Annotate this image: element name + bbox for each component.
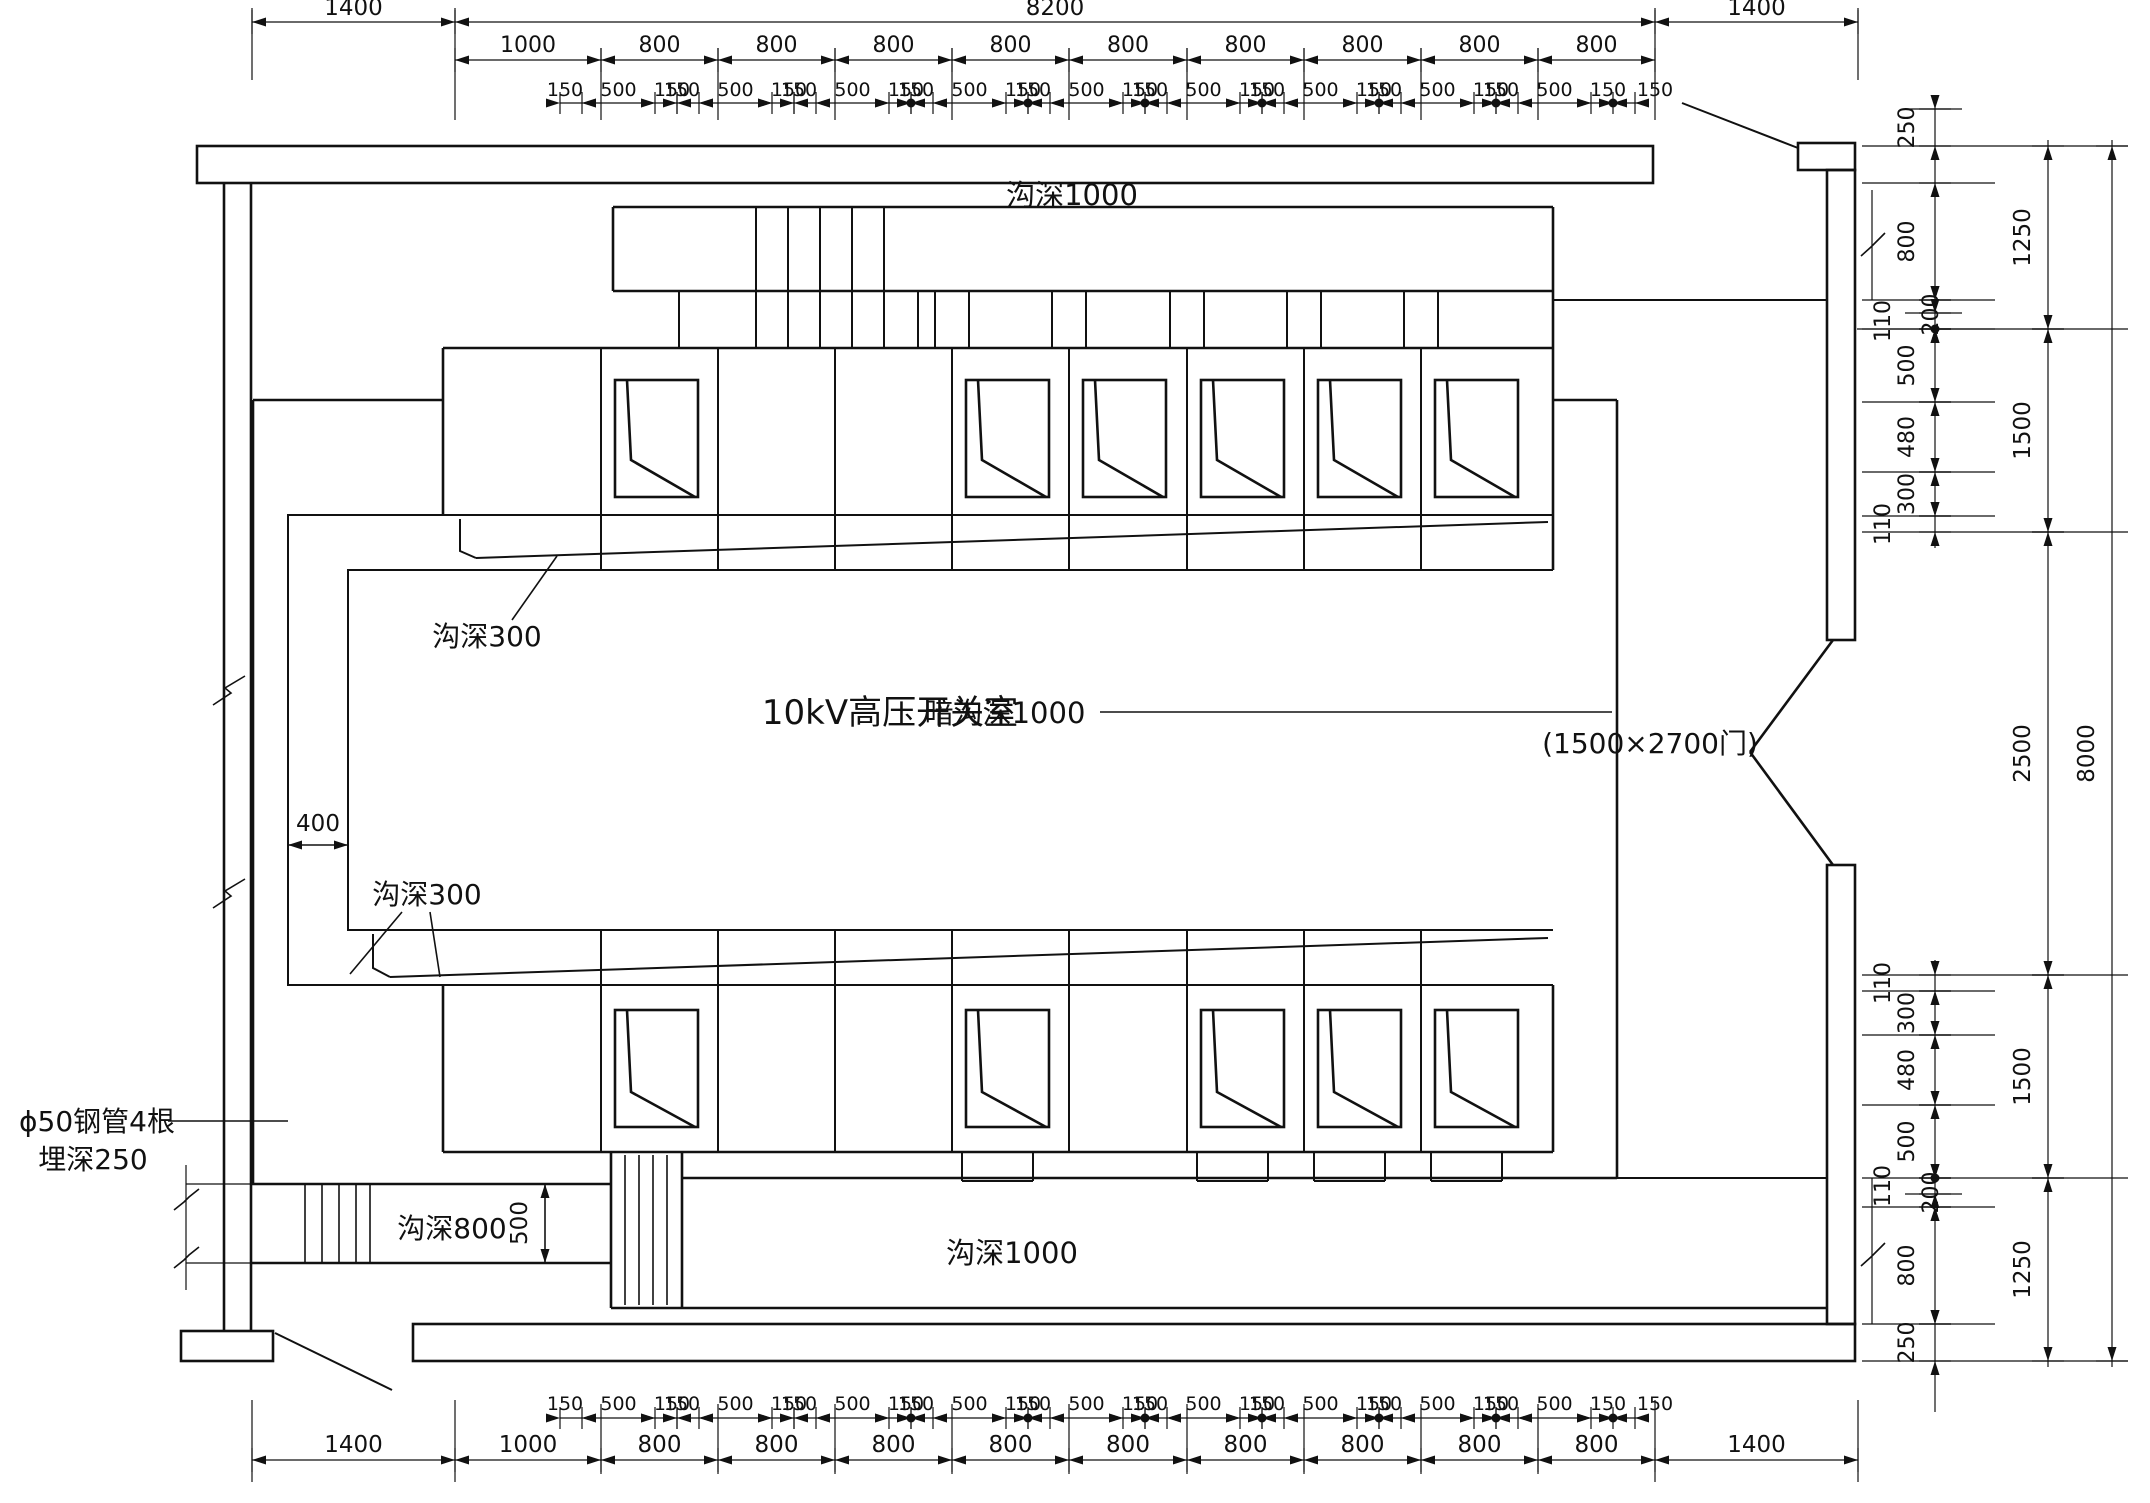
- dimension-label: 500: [1302, 79, 1338, 101]
- dimension-label: 500: [1895, 345, 1920, 387]
- dimension-arrow: [1167, 1414, 1181, 1423]
- dimension-arrow: [1284, 1414, 1298, 1423]
- dimension-dot: [1492, 99, 1501, 108]
- dimension-arrow: [441, 1456, 455, 1465]
- dimension-label: 1400: [324, 0, 383, 21]
- door-leaf: [1750, 640, 1833, 752]
- dimension-arrow: [1407, 1456, 1421, 1465]
- dimension-arrow: [1931, 388, 1940, 402]
- dimension-arrow: [587, 1456, 601, 1465]
- dimension-arrow: [252, 18, 266, 27]
- dimension-arrow: [718, 1456, 732, 1465]
- dimension-label: 150: [1249, 79, 1285, 101]
- cell-hook: [1213, 1010, 1281, 1127]
- dimension-label: 8000: [2074, 724, 2100, 783]
- dimension-arrow: [1931, 991, 1940, 1005]
- dimension-label: 110: [1871, 300, 1896, 342]
- dimension-arrow: [1187, 56, 1201, 65]
- dimension-label: 800: [1459, 33, 1501, 58]
- dimension-arrow: [288, 841, 302, 850]
- dimension-arrow: [1187, 1456, 1201, 1465]
- dimension-label: 500: [1302, 1393, 1338, 1415]
- duct-width-value: 400: [296, 811, 340, 837]
- cell-hook: [1330, 1010, 1398, 1127]
- dimension-label: 1500: [2010, 1047, 2036, 1106]
- dimension-arrow: [938, 56, 952, 65]
- dimension-dot: [1024, 99, 1033, 108]
- dimension-arrow: [1641, 56, 1655, 65]
- door-label: (1500×2700门): [1542, 727, 1758, 760]
- dimension-label: 800: [1895, 221, 1920, 263]
- dimension-arrow: [1641, 18, 1655, 27]
- dimension-arrow: [816, 99, 830, 108]
- dimension-label: 800: [1224, 1432, 1268, 1458]
- dimension-arrow: [601, 56, 615, 65]
- cell-hook: [1330, 380, 1398, 497]
- dimension-label: 150: [547, 79, 583, 101]
- dimension-label: 800: [1895, 1245, 1920, 1287]
- dimension-label: 250: [1895, 107, 1920, 149]
- dimension-arrow: [2108, 146, 2117, 160]
- dimension-label: 150: [1483, 1393, 1519, 1415]
- dimension-arrow: [821, 1456, 835, 1465]
- dimension-label: 800: [989, 1432, 1033, 1458]
- dimension-arrow: [1069, 1456, 1083, 1465]
- annotations: 10kV高压开关室 沟深1000 沟深1000 暗沟深1000 沟深800 沟深…: [19, 178, 1758, 1270]
- dimension-arrow: [1844, 18, 1858, 27]
- dimension-dot: [1258, 1414, 1267, 1423]
- dimension-arrow: [1524, 56, 1538, 65]
- dimension-label: 800: [639, 33, 681, 58]
- dimension-arrow: [699, 99, 713, 108]
- dimension-arrow: [1931, 1361, 1940, 1375]
- dimension-label: 800: [1575, 1432, 1619, 1458]
- dimension-arrow: [2044, 975, 2053, 989]
- dimension-arrow: [252, 1456, 266, 1465]
- drawing-page: 10kV高压开关室 沟深1000 沟深1000 暗沟深1000 沟深800 沟深…: [0, 0, 2150, 1503]
- dimension-arrow: [1844, 1456, 1858, 1465]
- pipes-label-line1: ϕ50钢管4根: [19, 1105, 175, 1138]
- duct-hook-bottom: [373, 934, 390, 977]
- break-mark: [213, 676, 245, 705]
- duct-slope-top: [476, 522, 1548, 558]
- dimension-arrow: [1173, 56, 1187, 65]
- dimension-arrow: [1055, 56, 1069, 65]
- dimension-label: 800: [756, 33, 798, 58]
- door-leader: [1682, 103, 1798, 148]
- right-wall-upper: [1827, 170, 1855, 640]
- dimension-label: 500: [951, 1393, 987, 1415]
- dimension-label: 500: [1068, 1393, 1104, 1415]
- dimension-arrow: [1931, 1021, 1940, 1035]
- cell-hook: [1213, 380, 1281, 497]
- dimension-arrow: [933, 1414, 947, 1423]
- dimension-arrow: [1290, 56, 1304, 65]
- cell-hook: [978, 380, 1046, 497]
- dimension-arrow: [541, 1249, 550, 1263]
- dimension-label: 800: [873, 33, 915, 58]
- dimension-dot: [1609, 1414, 1618, 1423]
- break-mark: [213, 879, 245, 908]
- dimension-label: 500: [600, 1393, 636, 1415]
- dimension-label: 800: [1342, 33, 1384, 58]
- shallow-bottom-leader: [350, 912, 402, 974]
- dimension-arrow: [1931, 458, 1940, 472]
- dimension-label: 150: [547, 1393, 583, 1415]
- dimension-arrow: [835, 1456, 849, 1465]
- cell-hook: [627, 1010, 695, 1127]
- dimension-arrow: [938, 1456, 952, 1465]
- dimension-arrow: [1050, 99, 1064, 108]
- dimension-arrow: [704, 56, 718, 65]
- dimension-arrow: [1401, 1414, 1415, 1423]
- dimension-label: 150: [1132, 79, 1168, 101]
- dimension-arrow: [455, 1456, 469, 1465]
- bottom-wall: [413, 1324, 1855, 1361]
- dimension-label: 480: [1895, 1049, 1920, 1091]
- dimension-arrow: [835, 56, 849, 65]
- break-mark: [1861, 1243, 1885, 1266]
- dimension-label: 110: [1871, 1165, 1896, 1207]
- dimension-dot: [1492, 1414, 1501, 1423]
- dimension-arrow: [952, 1456, 966, 1465]
- dimension-label: 500: [1536, 1393, 1572, 1415]
- cell-hook: [978, 1010, 1046, 1127]
- dimension-arrow: [1931, 183, 1940, 197]
- dimension-arrow: [1538, 56, 1552, 65]
- dimension-label: 1400: [1727, 0, 1786, 21]
- dimension-arrow: [2044, 1347, 2053, 1361]
- dimension-arrow: [1290, 1456, 1304, 1465]
- dimension-dot: [907, 99, 916, 108]
- dimension-arrow: [2044, 329, 2053, 343]
- dimension-label: 150: [1249, 1393, 1285, 1415]
- dimension-label: 1250: [2010, 1240, 2036, 1299]
- dimension-label: 2500: [2010, 724, 2036, 783]
- dimension-label: 250: [1895, 1322, 1920, 1364]
- dimension-arrow: [1931, 1310, 1940, 1324]
- dimension-label: 500: [717, 79, 753, 101]
- dimension-label: 800: [1106, 1432, 1150, 1458]
- dimension-label: 150: [1637, 79, 1673, 101]
- dimension-arrow: [2044, 315, 2053, 329]
- dimension-label: 500: [600, 79, 636, 101]
- left-trench-label: 沟深800: [397, 1212, 506, 1245]
- dimension-arrow: [601, 1456, 615, 1465]
- dimension-dot: [1375, 1414, 1384, 1423]
- dimension-label: 500: [1185, 79, 1221, 101]
- dimension-arrow: [1931, 1091, 1940, 1105]
- right-pier-cap: [1798, 143, 1855, 170]
- duct-hook-top: [460, 519, 476, 558]
- dimension-arrow: [587, 56, 601, 65]
- shallow-bottom-leader: [430, 912, 440, 977]
- left-wall-footing: [181, 1331, 273, 1361]
- dimension-label: 8200: [1026, 0, 1085, 21]
- dimension-arrow: [2108, 1347, 2117, 1361]
- dimension-arrow: [541, 1184, 550, 1198]
- dimension-arrow: [1655, 18, 1669, 27]
- dimension-label: 150: [1590, 1393, 1626, 1415]
- dimension-arrow: [1931, 95, 1940, 109]
- dimension-label: 800: [1458, 1432, 1502, 1458]
- dimension-label: 800: [1341, 1432, 1385, 1458]
- engineering-drawing: 10kV高压开关室 沟深1000 沟深1000 暗沟深1000 沟深800 沟深…: [0, 0, 2150, 1503]
- dimension-dot: [1609, 99, 1618, 108]
- dimension-arrow: [1931, 472, 1940, 486]
- dimension-label: 500: [1185, 1393, 1221, 1415]
- dimension-arrow: [1167, 99, 1181, 108]
- dimension-label: 500: [834, 1393, 870, 1415]
- dimension-chains: 1400820014001000800800800800800800800800…: [252, 0, 2128, 1482]
- cell-hook: [627, 380, 695, 497]
- top-wall: [197, 146, 1653, 183]
- dimension-arrow: [952, 56, 966, 65]
- dimension-label: 1500: [2010, 401, 2036, 460]
- dimension-label: 150: [1015, 79, 1051, 101]
- dimension-label: 300: [1895, 473, 1920, 515]
- dimension-arrow: [1538, 1456, 1552, 1465]
- break-mark: [1861, 233, 1885, 256]
- dimension-arrow: [334, 841, 348, 850]
- dimension-label: 500: [1068, 79, 1104, 101]
- dimension-arrow: [455, 56, 469, 65]
- dimension-label: 150: [898, 1393, 934, 1415]
- dimension-label: 500: [1419, 79, 1455, 101]
- dimension-arrow: [2044, 1164, 2053, 1178]
- dimension-arrow: [718, 56, 732, 65]
- dimension-label: 1400: [1727, 1432, 1786, 1458]
- dimension-dot: [1024, 1414, 1033, 1423]
- dimension-arrow: [1931, 532, 1940, 546]
- shallow-top-leader: [512, 556, 557, 620]
- dimension-label: 150: [1483, 79, 1519, 101]
- dimension-label: 800: [1225, 33, 1267, 58]
- duct-slope-bottom: [390, 938, 1548, 977]
- dimension-arrow: [699, 1414, 713, 1423]
- dimension-arrow: [1050, 1414, 1064, 1423]
- dimension-label: 800: [1107, 33, 1149, 58]
- dimension-arrow: [1069, 56, 1083, 65]
- dimension-label: 150: [664, 1393, 700, 1415]
- shallow-trench-top-label: 沟深300: [432, 620, 541, 653]
- dimension-label: 1000: [500, 33, 556, 58]
- dimension-label: 800: [755, 1432, 799, 1458]
- dimension-label: 480: [1895, 416, 1920, 458]
- dimension-arrow: [1407, 56, 1421, 65]
- dimension-arrow: [1421, 56, 1435, 65]
- dimension-arrow: [1173, 1456, 1187, 1465]
- cell-hook: [1095, 380, 1163, 497]
- dimension-label: 500: [1536, 79, 1572, 101]
- dimension-label: 150: [781, 79, 817, 101]
- dimension-arrow: [1284, 99, 1298, 108]
- dimension-label: 150: [781, 1393, 817, 1415]
- dimension-dot: [1258, 99, 1267, 108]
- dimension-arrow: [1518, 99, 1532, 108]
- dimension-arrow: [1655, 1456, 1669, 1465]
- dimension-label: 150: [1366, 79, 1402, 101]
- dimension-label: 150: [664, 79, 700, 101]
- dimension-label: 110: [1871, 503, 1896, 545]
- right-wall-lower: [1827, 865, 1855, 1324]
- dimension-label: 110: [1871, 962, 1896, 1004]
- dimension-label: 500: [1419, 1393, 1455, 1415]
- dimension-label: 800: [638, 1432, 682, 1458]
- dimension-label: 500: [717, 1393, 753, 1415]
- dimension-label: 150: [1590, 79, 1626, 101]
- dimension-arrow: [1055, 1456, 1069, 1465]
- dimension-label: 150: [1015, 1393, 1051, 1415]
- dimension-arrow: [2044, 532, 2053, 546]
- shallow-trench-bottom-label: 沟深300: [372, 878, 481, 911]
- dimension-label: 800: [1576, 33, 1618, 58]
- dimension-arrow: [2044, 961, 2053, 975]
- left-trench-depth-value: 500: [507, 1201, 533, 1245]
- dimension-arrow: [2044, 518, 2053, 532]
- dimension-label: 1400: [324, 1432, 383, 1458]
- dimension-arrow: [1931, 502, 1940, 516]
- dimension-dot: [907, 1414, 916, 1423]
- dimension-label: 500: [1895, 1121, 1920, 1163]
- door-leaf: [1750, 752, 1833, 865]
- pipes-label-line2: 埋深250: [38, 1143, 147, 1176]
- dimension-arrow: [2044, 1178, 2053, 1192]
- dimension-arrow: [2044, 146, 2053, 160]
- dimension-arrow: [1931, 961, 1940, 975]
- hidden-trench-label: 暗沟深1000: [925, 696, 1086, 730]
- dimension-arrow: [1931, 146, 1940, 160]
- dimension-arrow: [1304, 1456, 1318, 1465]
- dimension-arrow: [816, 1414, 830, 1423]
- dimension-arrow: [933, 99, 947, 108]
- dimension-label: 500: [951, 79, 987, 101]
- dimension-arrow: [1641, 1456, 1655, 1465]
- dimension-dot: [1141, 1414, 1150, 1423]
- ground-leader: [275, 1333, 392, 1390]
- dimension-label: 300: [1895, 992, 1920, 1034]
- dimension-label: 800: [872, 1432, 916, 1458]
- dimension-label: 800: [990, 33, 1032, 58]
- dimension-arrow: [1518, 1414, 1532, 1423]
- dimension-arrow: [1931, 1035, 1940, 1049]
- dimension-label: 1250: [2010, 208, 2036, 267]
- dimension-arrow: [1524, 1456, 1538, 1465]
- dimension-arrow: [704, 1456, 718, 1465]
- dimension-dot: [1141, 99, 1150, 108]
- dimension-arrow: [441, 18, 455, 27]
- dimension-arrow: [821, 56, 835, 65]
- dimension-label: 150: [1132, 1393, 1168, 1415]
- dimension-dot: [1375, 99, 1384, 108]
- dimension-arrow: [1931, 402, 1940, 416]
- dimension-arrow: [1304, 56, 1318, 65]
- cell-hook: [1447, 380, 1515, 497]
- dimension-arrow: [455, 18, 469, 27]
- dimension-arrow: [582, 1414, 596, 1423]
- dimension-arrow: [1931, 1105, 1940, 1119]
- dimension-label: 150: [898, 79, 934, 101]
- dimension-arrow: [1421, 1456, 1435, 1465]
- dimension-label: 1000: [499, 1432, 558, 1458]
- dimension-label: 500: [834, 79, 870, 101]
- dimension-arrow: [1401, 99, 1415, 108]
- trench-bottom-label: 沟深1000: [946, 1236, 1078, 1270]
- cell-hook: [1447, 1010, 1515, 1127]
- dimension-label: 150: [1366, 1393, 1402, 1415]
- dimension-arrow: [582, 99, 596, 108]
- duct-outer: [288, 515, 1553, 985]
